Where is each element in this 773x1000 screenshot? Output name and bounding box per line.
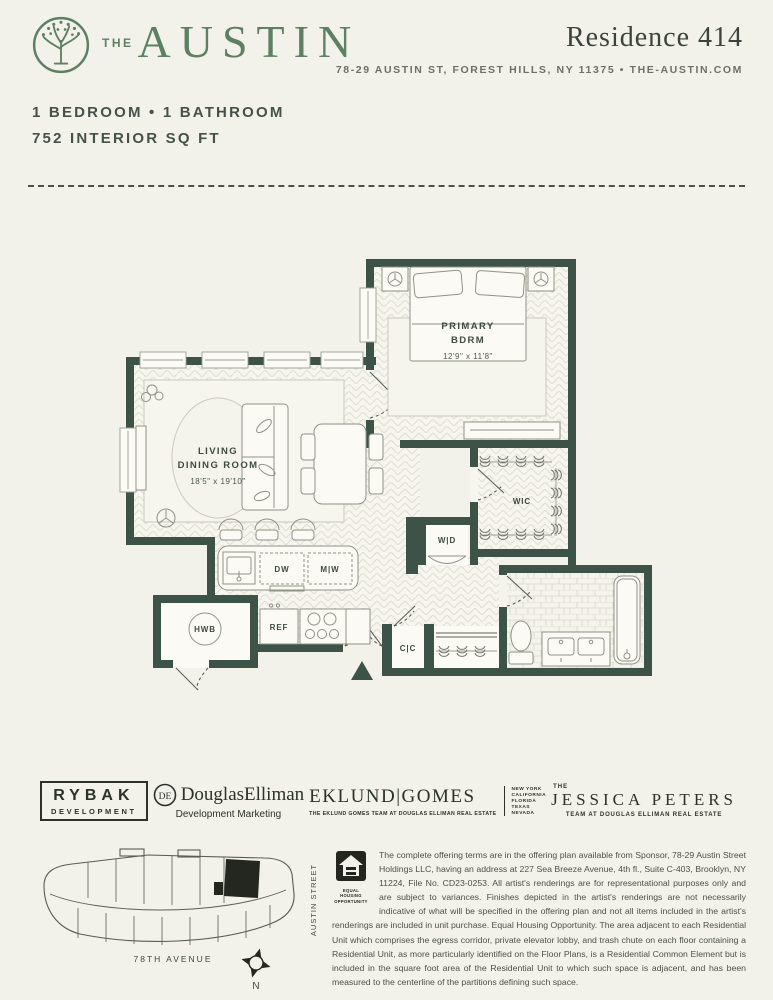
disclaimer-text: The complete offering terms are in the o… — [332, 848, 746, 989]
eklund-gomes-logo: EKLUND|GOMES THE EKLUND GOMES TEAM AT DO… — [309, 786, 546, 817]
living-room-label-1: LIVING — [198, 446, 238, 457]
area-line: 752 INTERIOR SQ FT — [32, 130, 285, 147]
brand-logo: THE AUSTIN — [30, 14, 360, 76]
eklund-state: TEXAS — [512, 805, 547, 810]
brand-name: AUSTIN — [138, 19, 361, 65]
eklund-states: NEW YORK CALIFORNIA FLORIDA TEXAS NEVADA — [512, 787, 547, 816]
residence-address: 78-29 AUSTIN ST, FOREST HILLS, NY 11375 … — [336, 64, 743, 76]
keyplan-core — [214, 882, 223, 895]
dashed-divider — [28, 185, 745, 187]
living-room-dims: 18'5" x 19'10" — [190, 477, 245, 486]
coat-closet-label: C|C — [400, 644, 417, 653]
tree-icon — [30, 14, 92, 76]
highlighted-unit — [224, 859, 260, 898]
compass-n-label: N — [252, 981, 259, 992]
refrigerator-label: REF — [270, 623, 289, 632]
compass-icon — [238, 945, 275, 982]
de-monogram-icon: DE — [153, 783, 177, 807]
douglas-elliman-logo: DE DouglasElliman Development Marketing — [153, 783, 304, 820]
de-sub: Development Marketing — [153, 809, 304, 820]
eklund-state: CALIFORNIA — [512, 793, 547, 798]
eklund-state: NEVADA — [512, 811, 547, 816]
floorplan-drawing: LIVING DINING ROOM 18'5" x 19'10" PRIMAR… — [118, 230, 658, 698]
living-room-label-2: DINING ROOM — [178, 460, 259, 471]
rybak-logo: RYBAK DEVELOPMENT — [40, 781, 148, 821]
entry-arrow — [351, 661, 373, 680]
equal-housing-logo: EQUAL HOUSING OPPORTUNITY — [332, 850, 370, 904]
washer-dryer-label: W|D — [438, 536, 456, 545]
equal-housing-label: EQUAL HOUSING OPPORTUNITY — [332, 888, 370, 904]
dishwasher-label: DW — [274, 565, 289, 574]
street-right-label: AUSTIN STREET — [309, 864, 318, 936]
jp-name: JESSICA PETERS — [551, 790, 737, 810]
wic-label: WIC — [513, 497, 531, 506]
microwave-label: M|W — [320, 565, 339, 574]
bedroom-label-1: PRIMARY — [441, 321, 494, 332]
eklund-name: EKLUND|GOMES — [309, 786, 496, 808]
floorplan-sheet: THE AUSTIN Residence 414 78-29 AUSTIN ST… — [0, 0, 773, 1000]
equal-housing-icon — [335, 850, 367, 882]
eklund-state: NEW YORK — [512, 787, 547, 792]
site-keyplan: KEW FOREST LANE AUSTIN STREET 78TH AVENU… — [28, 842, 323, 992]
residence-title: Residence 414 — [336, 22, 743, 54]
beds-baths-line: 1 BEDROOM • 1 BATHROOM — [32, 104, 285, 121]
brand-the: THE — [102, 36, 134, 50]
jp-sub: TEAM AT DOUGLAS ELLIMAN REAL ESTATE — [551, 812, 737, 818]
partner-logos: RYBAK DEVELOPMENT DE DouglasElliman Deve… — [40, 772, 737, 830]
svg-text:DE: DE — [158, 792, 171, 802]
bedroom-label-2: BDRM — [451, 335, 485, 346]
legal-block: EQUAL HOUSING OPPORTUNITY The complete o… — [332, 848, 746, 989]
eklund-divider — [504, 786, 505, 816]
bedroom-dims: 12'9" x 11'8" — [443, 352, 493, 361]
eklund-state: FLORIDA — [512, 799, 547, 804]
rybak-name: RYBAK — [51, 787, 137, 805]
rybak-sub: DEVELOPMENT — [51, 807, 137, 816]
jessica-peters-logo: THE JESSICA PETERS TEAM AT DOUGLAS ELLIM… — [551, 784, 737, 818]
eklund-sub: THE EKLUND GOMES TEAM AT DOUGLAS ELLIMAN… — [309, 811, 496, 817]
de-name: DouglasElliman — [181, 784, 304, 806]
street-bottom-label: 78TH AVENUE — [133, 954, 212, 964]
hwb-label: HWB — [194, 625, 216, 634]
